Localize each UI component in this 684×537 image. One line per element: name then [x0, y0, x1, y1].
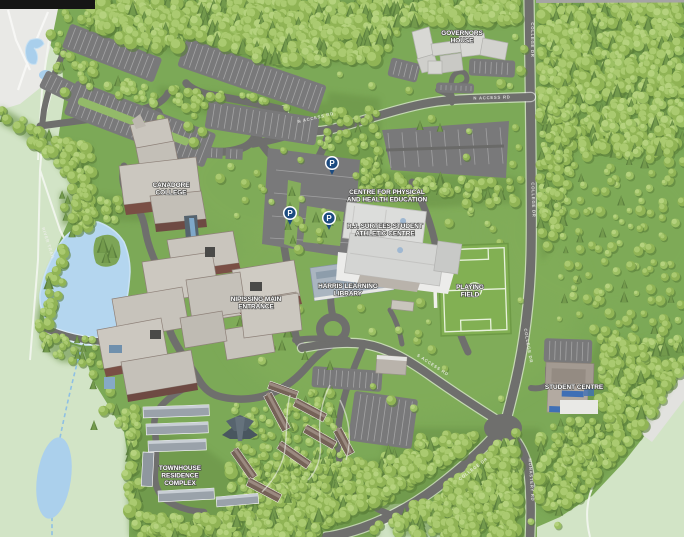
svg-text:COLLEGE DR: COLLEGE DR — [530, 22, 535, 57]
svg-text:R.J. SURTEES STUDENTATHLETIC C: R.J. SURTEES STUDENTATHLETIC CENTRE — [347, 223, 423, 238]
svg-text:TOWNHOUSERESIDENCECOMPLEX: TOWNHOUSERESIDENCECOMPLEX — [159, 465, 202, 487]
svg-text:P: P — [329, 159, 335, 168]
svg-text:P: P — [326, 214, 332, 223]
svg-text:P: P — [287, 209, 293, 218]
svg-text:STUDENT CENTRE: STUDENT CENTRE — [545, 384, 604, 391]
svg-text:CANADORECOLLEGE: CANADORECOLLEGE — [153, 182, 191, 197]
svg-text:CENTRE FOR PHYSICALAND HEALTH: CENTRE FOR PHYSICALAND HEALTH EDUCATION — [347, 189, 428, 204]
